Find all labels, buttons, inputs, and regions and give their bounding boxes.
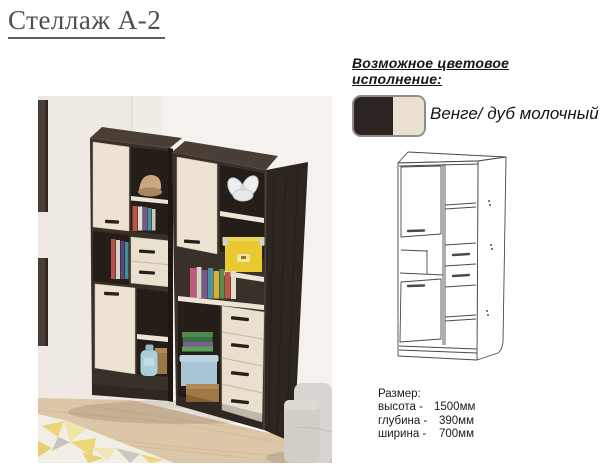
cabinet-line-drawing: [394, 146, 510, 366]
drawer-handle: [453, 254, 469, 255]
drawer-handle: [453, 275, 469, 276]
right-cabinet: [168, 141, 308, 443]
color-swatch: [352, 95, 426, 137]
left-door-bottom: [95, 284, 135, 374]
swatch-milk-oak: [393, 97, 424, 135]
right-drawers: [222, 306, 264, 422]
yellow-box: [223, 237, 265, 272]
blue-box: [180, 355, 219, 386]
size-block: Размер: высота - 1500мм глубина - 390мм …: [378, 388, 474, 442]
size-heading: Размер:: [378, 388, 474, 401]
left-door-top: [93, 142, 129, 231]
books: [133, 206, 156, 231]
books: [111, 239, 129, 279]
right-door-top: [177, 157, 217, 254]
size-row-height: высота - 1500мм: [378, 401, 474, 414]
color-swatch-label: Венге/ дуб молочный: [430, 104, 599, 124]
page-title: Стеллаж А-2: [8, 5, 165, 39]
size-row-depth: глубина - 390мм: [378, 415, 474, 428]
catalog-page: Стеллаж А-2: [0, 0, 600, 468]
size-row-width: ширина - 700мм: [378, 428, 474, 441]
color-options-heading: Возможное цветовое исполнение:: [352, 55, 600, 87]
product-photo: [38, 96, 332, 463]
door-handle: [408, 286, 424, 287]
door-handle: [408, 231, 424, 232]
stacked-books: [182, 332, 213, 352]
swatch-wenge: [354, 97, 393, 135]
